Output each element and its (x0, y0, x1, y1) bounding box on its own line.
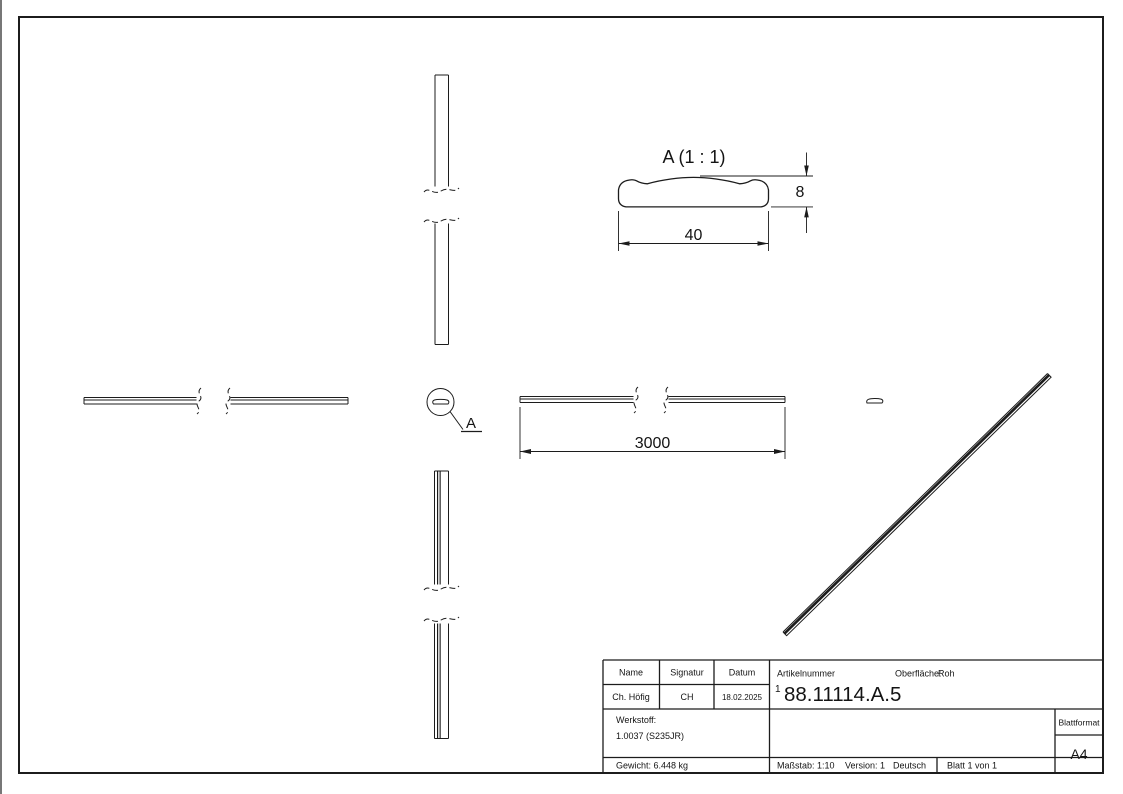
isometric-edge-dark (785, 375, 1050, 633)
isometric-edge (783, 374, 1048, 633)
label-artikelnummer: Artikelnummer (777, 669, 835, 679)
break-line (424, 617, 459, 621)
arrowhead (619, 241, 630, 246)
break-line (424, 586, 459, 590)
value-blattformat: A4 (1070, 746, 1087, 762)
view-main (520, 387, 785, 413)
value-oberflaeche: Roh (938, 669, 955, 679)
break-line (226, 388, 230, 414)
drawing-sheet: A 3000 A (1 : 1) (0, 0, 1123, 794)
end-profile-section (867, 399, 883, 403)
detail-view-label: A (1 : 1) (662, 147, 725, 167)
detail-callout-letter: A (466, 415, 476, 432)
value-signatur: CH (681, 692, 694, 702)
arrowhead (758, 241, 769, 246)
dimension-3000: 3000 (520, 407, 785, 459)
value-datum: 18.02.2025 (722, 693, 763, 702)
value-name: Ch. Höfig (612, 692, 650, 702)
dim-length-text: 3000 (635, 435, 671, 452)
dim-width-text: 40 (685, 227, 703, 244)
detail-view-a: A (1 : 1) 40 8 (619, 147, 814, 251)
label-oberflaeche: Oberfläche: (895, 669, 942, 679)
view-bottom (424, 471, 459, 739)
dimension-40: 40 (619, 211, 769, 251)
arrowhead (804, 207, 809, 218)
value-werkstoff: 1.0037 (S235JR) (616, 731, 684, 741)
title-block: Name Signatur Datum Artikelnummer Oberfl… (603, 660, 1103, 773)
view-end (867, 399, 883, 403)
article-number-prefix: 1 (775, 684, 781, 695)
break-line (197, 388, 201, 414)
view-left (84, 388, 348, 414)
value-version: Version: 1 (845, 761, 885, 771)
header-datum: Datum (729, 668, 756, 678)
label-blattformat: Blattformat (1058, 718, 1100, 728)
article-number: 88.11114.A.5 (784, 683, 901, 706)
value-sprache: Deutsch (893, 761, 926, 771)
label-werkstoff: Werkstoff: (616, 715, 656, 725)
break-line (424, 218, 459, 222)
arrowhead (774, 449, 785, 454)
arrowhead (804, 166, 809, 177)
break-line (634, 387, 638, 413)
callout-profile-section (433, 399, 449, 404)
cad-drawing-canvas: A 3000 A (1 : 1) (0, 0, 1123, 794)
callout-leader-line (450, 412, 463, 430)
break-line (424, 188, 459, 192)
detail-callout: A (427, 389, 482, 433)
view-top (424, 75, 459, 345)
break-line (664, 387, 668, 413)
dim-height-text: 8 (796, 184, 805, 201)
handrail-profile-section (619, 177, 769, 207)
header-signatur: Signatur (670, 668, 704, 678)
isometric-edge (787, 377, 1052, 636)
value-gewicht: Gewicht: 6.448 kg (616, 761, 688, 771)
arrowhead (520, 449, 531, 454)
view-isometric (783, 374, 1051, 637)
value-blatt: Blatt 1 von 1 (947, 761, 997, 771)
header-name: Name (619, 668, 643, 678)
value-massstab: Maßstab: 1:10 (777, 761, 835, 771)
